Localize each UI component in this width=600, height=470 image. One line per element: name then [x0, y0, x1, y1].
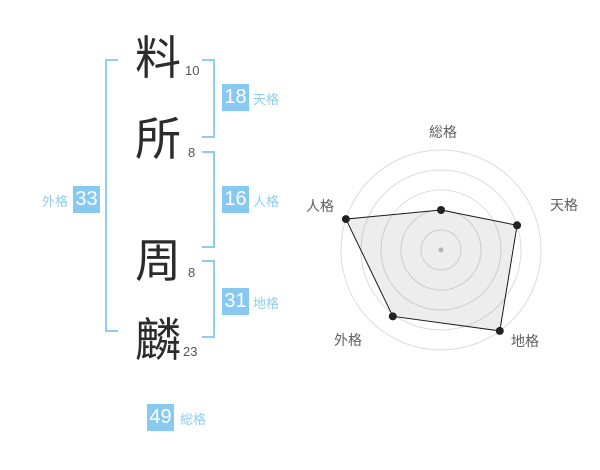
stroke-count-4: 23 — [183, 345, 197, 358]
chikaku-score-label: 地格 — [253, 297, 279, 310]
radar-data-point — [513, 221, 521, 229]
name-character-2: 所 — [134, 116, 182, 162]
name-character-3: 周 — [134, 238, 182, 284]
radar-axis-label-chikaku: 地格 — [511, 334, 539, 348]
chikaku-score-badge: 31 — [222, 288, 249, 315]
radar-data-polygon — [346, 210, 517, 331]
radar-axis-label-soukaku: 総格 — [429, 125, 457, 139]
radar-axis-label-jinkaku: 人格 — [306, 199, 334, 213]
jinkaku-score-badge: 16 — [222, 186, 249, 213]
tenkaku-score-badge: 18 — [222, 84, 249, 111]
tenkaku-score-label: 天格 — [253, 93, 279, 106]
stroke-count-3: 8 — [188, 266, 195, 279]
radar-data-point — [342, 215, 350, 223]
soukaku-score-badge: 49 — [147, 404, 174, 431]
radar-axis-label-tenkaku: 天格 — [550, 198, 578, 212]
radar-data-point — [496, 327, 504, 335]
jinkaku-bracket — [202, 151, 215, 248]
stroke-count-2: 8 — [188, 146, 195, 159]
chikaku-bracket — [202, 260, 215, 338]
soukaku-score-label: 総格 — [180, 413, 206, 426]
gaikaku-score-badge: 33 — [73, 186, 100, 213]
radar-axis-label-gaikaku: 外格 — [334, 333, 362, 347]
name-character-1: 料 — [134, 35, 182, 81]
gaikaku-score-label: 外格 — [40, 195, 68, 208]
tenkaku-bracket — [202, 59, 215, 138]
radar-data-point — [437, 206, 445, 214]
stroke-count-1: 10 — [185, 64, 199, 77]
name-fortune-diagram: 料 10 所 8 周 8 麟 23 18 天格 16 人格 31 地格 33 外… — [0, 0, 600, 470]
jinkaku-score-label: 人格 — [253, 195, 279, 208]
radar-data-point — [389, 312, 397, 320]
name-character-4: 麟 — [134, 317, 182, 363]
gaikaku-bracket — [105, 59, 118, 332]
